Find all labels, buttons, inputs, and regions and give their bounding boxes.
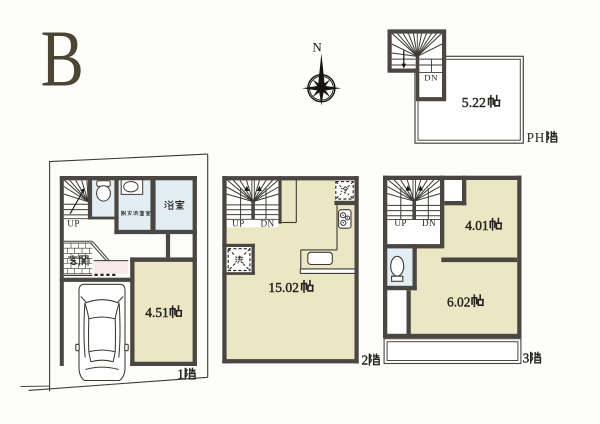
svg-text:UP: UP — [67, 219, 80, 229]
svg-text:DN: DN — [424, 72, 438, 82]
svg-text:DN: DN — [422, 218, 436, 228]
svg-text:DN: DN — [261, 219, 275, 229]
svg-text:15.02: 15.02 — [268, 280, 299, 295]
svg-text:4.01: 4.01 — [465, 218, 488, 233]
svg-text:UP: UP — [232, 219, 245, 229]
svg-text:UP: UP — [394, 218, 407, 228]
svg-text:PH: PH — [527, 130, 545, 145]
svg-text:N: N — [312, 40, 322, 55]
svg-text:4.51: 4.51 — [145, 305, 168, 320]
svg-text:3: 3 — [523, 351, 530, 366]
svg-text:B: B — [41, 14, 84, 103]
svg-text:6.02: 6.02 — [447, 294, 470, 309]
svg-text:5.22: 5.22 — [462, 95, 486, 110]
svg-text:1: 1 — [177, 367, 184, 382]
svg-text:2: 2 — [362, 352, 369, 367]
